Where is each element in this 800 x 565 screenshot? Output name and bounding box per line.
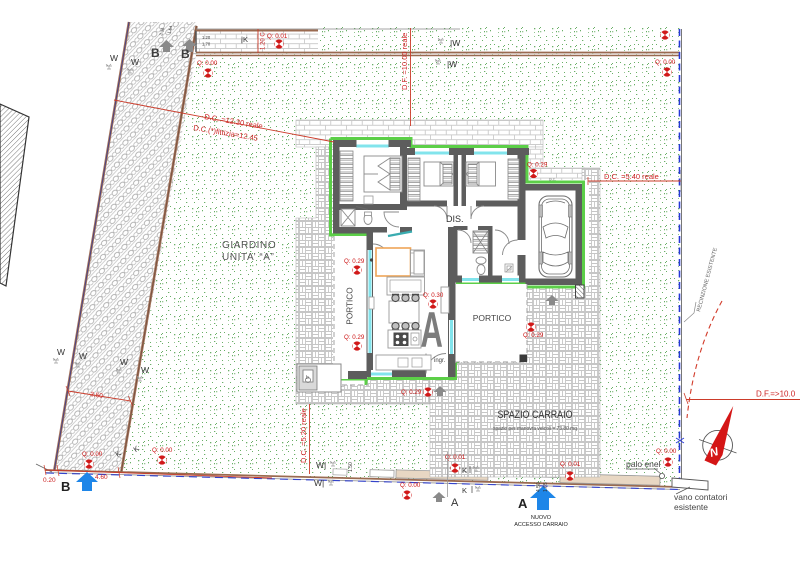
svg-text:|W: |W — [447, 59, 457, 69]
svg-text:PORTICO: PORTICO — [473, 313, 512, 323]
svg-text:Q: 0.00: Q: 0.00 — [82, 451, 103, 458]
svg-text:|W: |W — [450, 38, 460, 48]
svg-text:W|: W| — [314, 478, 324, 488]
svg-text:p.c.: p.c. — [549, 177, 556, 182]
svg-text:esistente: esistente — [674, 502, 708, 512]
svg-text:4.60: 4.60 — [95, 474, 108, 481]
svg-text:0.20: 0.20 — [43, 477, 56, 484]
svg-text:W: W — [110, 53, 118, 63]
svg-text:K: K — [462, 466, 467, 475]
svg-text:A: A — [518, 496, 528, 511]
svg-text:ingr.: ingr. — [434, 358, 446, 364]
svg-text:Q: 0.30: Q: 0.30 — [423, 292, 444, 299]
svg-text:1.70: 1.70 — [202, 42, 211, 47]
svg-text:D.F. =10.00 reale: D.F. =10.00 reale — [400, 33, 409, 90]
svg-text:Q: 0.29: Q: 0.29 — [401, 389, 422, 396]
svg-text:UNITA’ “A”: UNITA’ “A” — [222, 252, 274, 263]
svg-text:1.65: 1.65 — [543, 482, 549, 492]
svg-text:ACCESSO CARRAIO: ACCESSO CARRAIO — [514, 522, 568, 528]
svg-text:NUOVO: NUOVO — [531, 515, 552, 521]
svg-text:D.C. =5.40 reale: D.C. =5.40 reale — [604, 172, 659, 181]
svg-text:Q: 0.29: Q: 0.29 — [344, 334, 365, 341]
svg-text:K: K — [462, 486, 467, 495]
svg-text:A: A — [451, 497, 459, 509]
svg-text:B: B — [151, 46, 160, 60]
svg-text:D.F.=>10.0: D.F.=>10.0 — [756, 390, 796, 399]
svg-text:b: b — [306, 375, 309, 381]
svg-text:1.50: 1.50 — [348, 462, 354, 472]
svg-text:W: W — [79, 351, 87, 361]
svg-text:Q: 0.00: Q: 0.00 — [655, 59, 676, 66]
svg-text:Q: 0.00: Q: 0.00 — [152, 447, 173, 454]
svg-text:B: B — [61, 479, 70, 494]
svg-text:Q: 0.00: Q: 0.00 — [656, 448, 677, 455]
svg-text:Q: 0.01: Q: 0.01 — [445, 454, 466, 461]
svg-text:PORTICO: PORTICO — [346, 287, 355, 324]
svg-text:1.20 C: 1.20 C — [261, 32, 267, 50]
svg-text:Q: 0.01: Q: 0.01 — [267, 33, 288, 40]
svg-text:palo enel: palo enel — [626, 459, 661, 469]
svg-text:|K: |K — [241, 35, 248, 44]
svg-text:4.50: 4.50 — [536, 482, 542, 492]
svg-text:A: A — [421, 301, 443, 357]
svg-text:1.20: 1.20 — [202, 35, 211, 40]
svg-text:Q: 0.29: Q: 0.29 — [527, 162, 548, 169]
svg-text:DIS.: DIS. — [446, 214, 464, 224]
svg-text:W: W — [131, 57, 139, 67]
svg-text:GIARDINO: GIARDINO — [222, 240, 276, 251]
svg-text:B: B — [181, 47, 190, 61]
svg-text:Q: 0.01: Q: 0.01 — [560, 461, 581, 468]
svg-text:W: W — [120, 357, 128, 367]
svg-text:D.C. =5.20 reale: D.C. =5.20 reale — [299, 408, 308, 463]
svg-text:Q: 0.00: Q: 0.00 — [197, 60, 218, 67]
svg-text:Q: 0.29: Q: 0.29 — [523, 332, 544, 339]
svg-text:vano contatori: vano contatori — [674, 492, 728, 502]
svg-text:SPAZIO CARRAIO: SPAZIO CARRAIO — [498, 409, 573, 421]
svg-text:Q: 0.00: Q: 0.00 — [400, 482, 421, 489]
svg-text:W: W — [57, 347, 65, 357]
svg-text:W: W — [141, 365, 149, 375]
svg-text:Q: 0.29: Q: 0.29 — [344, 258, 365, 265]
svg-text:W|: W| — [316, 460, 326, 470]
svg-text:spazio per manovra veicoli =: spazio per manovra veicoli = 73.80 mq — [493, 426, 577, 432]
